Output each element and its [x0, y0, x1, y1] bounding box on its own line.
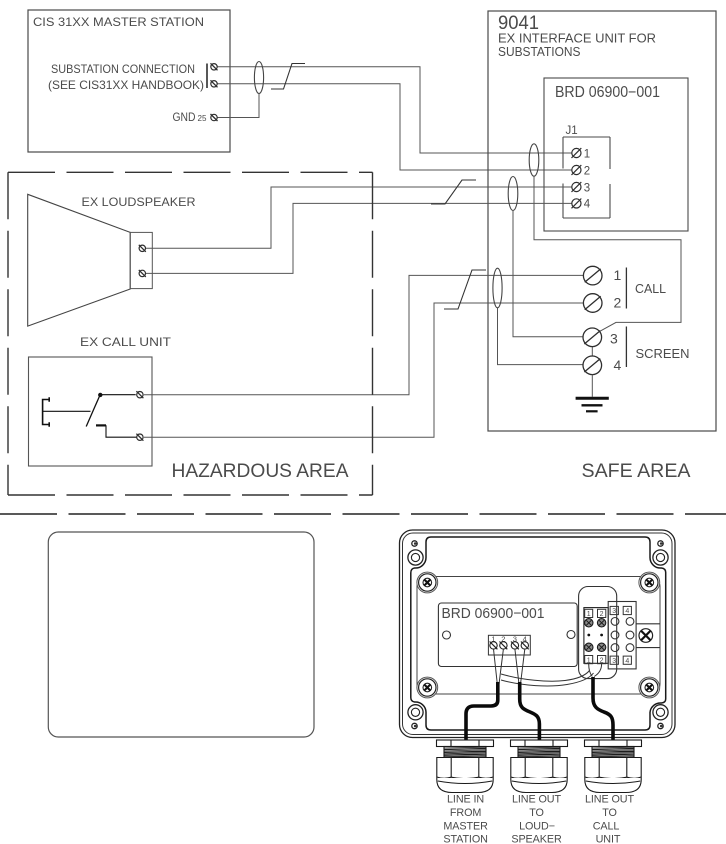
svg-text:CALL: CALL: [593, 821, 620, 833]
svg-text:EX CALL UNIT: EX CALL UNIT: [80, 335, 171, 349]
svg-text:BRD 06900−001: BRD 06900−001: [442, 606, 545, 622]
svg-text:4: 4: [584, 199, 591, 211]
svg-text:LOUD−: LOUD−: [519, 821, 555, 833]
svg-text:3: 3: [612, 608, 616, 615]
svg-text:SPEAKER: SPEAKER: [511, 834, 562, 844]
svg-text:SAFE AREA: SAFE AREA: [582, 460, 691, 482]
svg-text:GND: GND: [173, 110, 196, 124]
svg-text:LINE OUT: LINE OUT: [585, 794, 634, 806]
svg-text:BRD 06900−001: BRD 06900−001: [555, 84, 660, 101]
svg-text:4: 4: [625, 658, 629, 665]
svg-text:LINE IN: LINE IN: [447, 794, 484, 806]
svg-text:J1: J1: [566, 125, 578, 137]
svg-text:25: 25: [198, 113, 207, 123]
svg-text:3: 3: [610, 331, 618, 347]
svg-text:1: 1: [587, 657, 591, 664]
svg-text:CIS 31XX MASTER STATION: CIS 31XX MASTER STATION: [33, 15, 204, 29]
svg-text:2: 2: [584, 165, 590, 177]
svg-text:EX LOUDSPEAKER: EX LOUDSPEAKER: [82, 195, 196, 209]
svg-text:SCREEN: SCREEN: [636, 346, 690, 361]
svg-text:STATION: STATION: [443, 834, 488, 844]
svg-text:3: 3: [612, 658, 616, 665]
svg-text:HAZARDOUS AREA: HAZARDOUS AREA: [172, 460, 349, 482]
svg-text:(SEE CIS31XX HANDBOOK): (SEE CIS31XX HANDBOOK): [48, 78, 204, 92]
svg-text:TO: TO: [529, 807, 544, 819]
svg-text:1: 1: [587, 611, 591, 618]
svg-text:2: 2: [600, 611, 604, 618]
svg-text:SUBSTATIONS: SUBSTATIONS: [498, 44, 581, 59]
svg-text:SUBSTATION CONNECTION: SUBSTATION CONNECTION: [51, 62, 195, 76]
svg-text:TO: TO: [602, 807, 617, 819]
svg-text:MASTER: MASTER: [443, 821, 488, 833]
svg-text:CALL: CALL: [635, 281, 666, 296]
svg-text:LINE OUT: LINE OUT: [512, 794, 561, 806]
svg-text:2: 2: [614, 295, 622, 311]
svg-text:3: 3: [584, 182, 590, 194]
svg-text:FROM: FROM: [450, 807, 481, 819]
svg-text:4: 4: [614, 357, 622, 373]
svg-text:1: 1: [614, 267, 622, 283]
svg-text:2: 2: [600, 657, 604, 664]
svg-text:1: 1: [584, 148, 590, 160]
svg-text:4: 4: [625, 608, 629, 615]
svg-text:UNIT: UNIT: [596, 834, 621, 844]
